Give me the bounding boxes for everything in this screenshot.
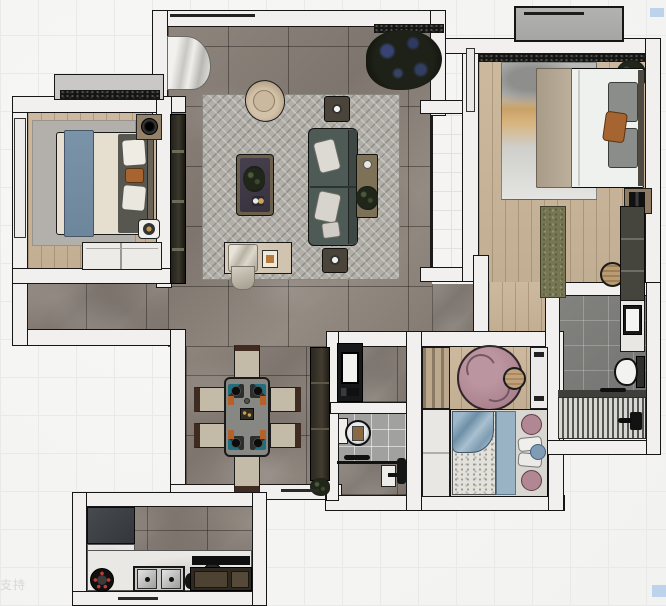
kitchen-cabinet-door-2	[231, 571, 249, 588]
master-duvet-fold-line	[578, 70, 580, 186]
floorplan-canvas: 支持	[0, 0, 666, 606]
kids-plank-wardrobe[interactable]	[422, 347, 450, 409]
kids-pouf[interactable]	[503, 367, 526, 390]
dining-chair-left-1[interactable]	[194, 387, 225, 412]
armchair-cushion	[253, 90, 275, 112]
table-knob-icon	[244, 398, 250, 404]
cabinet-shelf-line-1	[311, 382, 329, 384]
kids-pillow-pink-top	[521, 414, 542, 435]
floor-tray-dish-icon	[143, 223, 155, 235]
bench-book-mark	[266, 255, 274, 263]
watermark-text: 支持	[0, 576, 26, 593]
glass-door-balcony-icon[interactable]	[430, 116, 433, 267]
side-table-top-flower-icon	[332, 104, 342, 114]
napkin-orange-1	[228, 396, 234, 405]
wall-kids-left	[406, 331, 422, 511]
balcony-strip-floor	[432, 114, 462, 268]
wall-kitchen-left	[72, 492, 87, 606]
ensuite-toilet[interactable]	[614, 358, 638, 386]
kitchen-door-threshold	[118, 597, 158, 600]
tv-media-wall[interactable]	[170, 114, 186, 284]
wall-hall-bottom-left	[12, 329, 177, 346]
kids-desk-item-1	[534, 352, 544, 357]
sofa-cushion-3	[321, 221, 341, 239]
wall-kitchen-right	[252, 492, 267, 606]
sofa-seat-divider	[310, 186, 356, 188]
napkin-orange-2	[260, 396, 266, 405]
wall-kitchen-top	[72, 492, 267, 507]
wall-kitchen-bottom	[72, 591, 267, 606]
kitchen-range-hood	[192, 556, 250, 565]
master-wardrobe[interactable]	[620, 206, 645, 302]
cabinet-shelf-line-2	[311, 428, 329, 430]
kids-wardrobe-divider	[423, 452, 449, 454]
table-lamp-icon	[141, 118, 158, 135]
dining-chair-right-1[interactable]	[270, 387, 301, 412]
tv-media-wall-shelf-1	[172, 150, 184, 153]
bedroom-left-wardrobe[interactable]	[82, 242, 162, 270]
master-headboard	[638, 70, 644, 186]
kids-pillow-blue-round	[530, 444, 546, 460]
bedroom-master-corridor-floor	[489, 282, 545, 331]
bowl-icon-4	[253, 438, 263, 448]
cabinet-plant	[310, 478, 330, 496]
wall-ensuite-right	[646, 282, 661, 455]
wall-ensuite-bottom	[545, 440, 661, 455]
dining-tall-cabinet[interactable]	[310, 347, 330, 481]
kitchen-gas-burner[interactable]	[90, 568, 114, 592]
dining-chair-bottom[interactable]	[234, 456, 260, 492]
kitchen-fridge[interactable]	[87, 507, 135, 544]
wall-master-right	[645, 38, 661, 290]
bed-pillow-white-2	[121, 184, 147, 212]
bath-small-threshold-icon	[344, 455, 370, 460]
wardrobe-handle-line	[86, 248, 158, 249]
dining-chair-left-2[interactable]	[194, 423, 225, 448]
master-pillow-orange	[602, 111, 628, 144]
ensuite-shower-head-icon	[618, 418, 632, 423]
side-table-bottom-flower-icon	[330, 255, 340, 265]
selection-highlight-top	[650, 8, 664, 17]
bed-pillow-orange	[125, 168, 144, 183]
console-cup-icon	[363, 160, 372, 169]
tv-media-wall-shelf-3	[172, 248, 184, 251]
coffee-table-plant	[243, 166, 265, 192]
window-bedroom-left-icon	[14, 118, 26, 238]
bath-small-shower-set[interactable]	[397, 458, 406, 484]
dining-chair-right-2[interactable]	[270, 423, 301, 448]
ensuite-sink-basin	[626, 309, 639, 331]
vanity-items-icon	[341, 388, 359, 396]
wall-bedroom-left-bottom	[12, 268, 186, 284]
bath-small-mirror-photo	[352, 426, 364, 441]
napkin-orange-4	[260, 430, 266, 439]
console-plant	[356, 186, 378, 210]
selection-highlight-bottom	[652, 585, 666, 597]
dining-chair-top[interactable]	[234, 345, 260, 378]
ac-unit-vent-line	[524, 12, 584, 15]
hallway-right-floor	[432, 284, 474, 333]
master-wardrobe-line-1	[621, 238, 644, 240]
bed-pillow-white-1	[121, 138, 147, 167]
wall-bath-kids-bottom	[325, 495, 565, 511]
coffee-table-cups-icon	[252, 196, 264, 206]
bench-blanket-tail	[231, 266, 255, 290]
hallway-left-floor	[26, 284, 168, 331]
dining-door-threshold	[281, 489, 319, 492]
bowl-icon-2	[253, 386, 263, 396]
kitchen-sink-drain-right	[169, 577, 174, 582]
wall-shelf-line	[170, 14, 255, 17]
kids-blue-runner	[496, 411, 516, 495]
master-wardrobe-line-2	[621, 270, 644, 272]
wall-vanity-bath-divider	[330, 402, 412, 414]
master-bed-foot-throw	[536, 68, 572, 188]
bowl-icon-3	[231, 438, 241, 448]
wardrobe-divider-line	[120, 243, 122, 269]
table-center-tray	[240, 408, 254, 420]
bay-window-plants	[60, 90, 160, 99]
window-master-left-icon	[466, 48, 475, 112]
kitchen-cabinet-door-1	[194, 571, 228, 588]
ensuite-drain-icon	[600, 388, 626, 392]
kitchen-sink-drain-left	[145, 577, 150, 582]
kids-pillow-pink-bottom	[521, 470, 542, 491]
bowl-icon-1	[231, 386, 241, 396]
kids-desk-item-2	[534, 396, 544, 401]
tv-media-wall-shelf-2	[172, 200, 184, 203]
napkin-orange-3	[228, 430, 234, 439]
wall-kids-top	[330, 331, 562, 347]
master-nightstand-decor-icon	[629, 192, 645, 206]
master-curtain-track-plants	[479, 54, 645, 62]
master-runner-rug[interactable]	[540, 206, 566, 298]
bed-throw-blue	[64, 130, 94, 237]
vanity-mirror	[341, 352, 359, 384]
wall-dining-left	[170, 329, 186, 500]
